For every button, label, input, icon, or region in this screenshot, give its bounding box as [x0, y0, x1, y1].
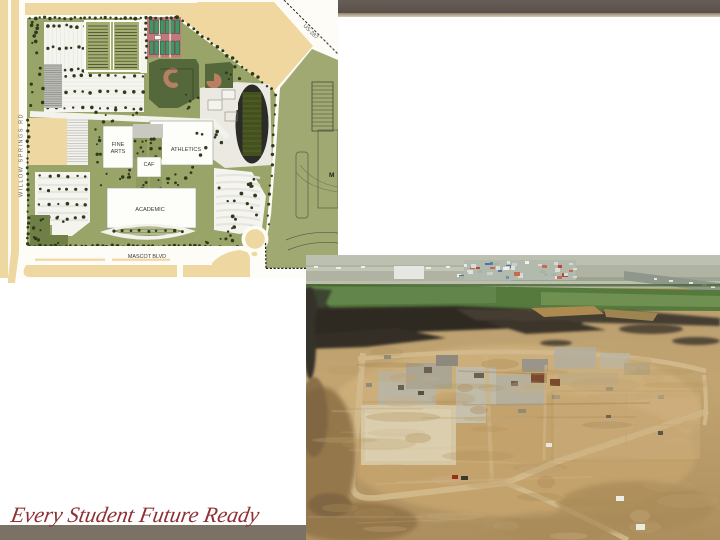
- svg-text:ACADEMIC: ACADEMIC: [135, 207, 165, 213]
- svg-text:ARTS: ARTS: [111, 149, 126, 155]
- svg-text:CAF: CAF: [144, 162, 155, 168]
- svg-text:WILLOW SPRINGS RD: WILLOW SPRINGS RD: [19, 113, 25, 197]
- svg-text:MASCOT BLVD: MASCOT BLVD: [128, 254, 166, 260]
- svg-text:FINE: FINE: [112, 142, 125, 148]
- svg-text:M: M: [329, 172, 334, 179]
- svg-text:ATHLETICS: ATHLETICS: [171, 147, 202, 153]
